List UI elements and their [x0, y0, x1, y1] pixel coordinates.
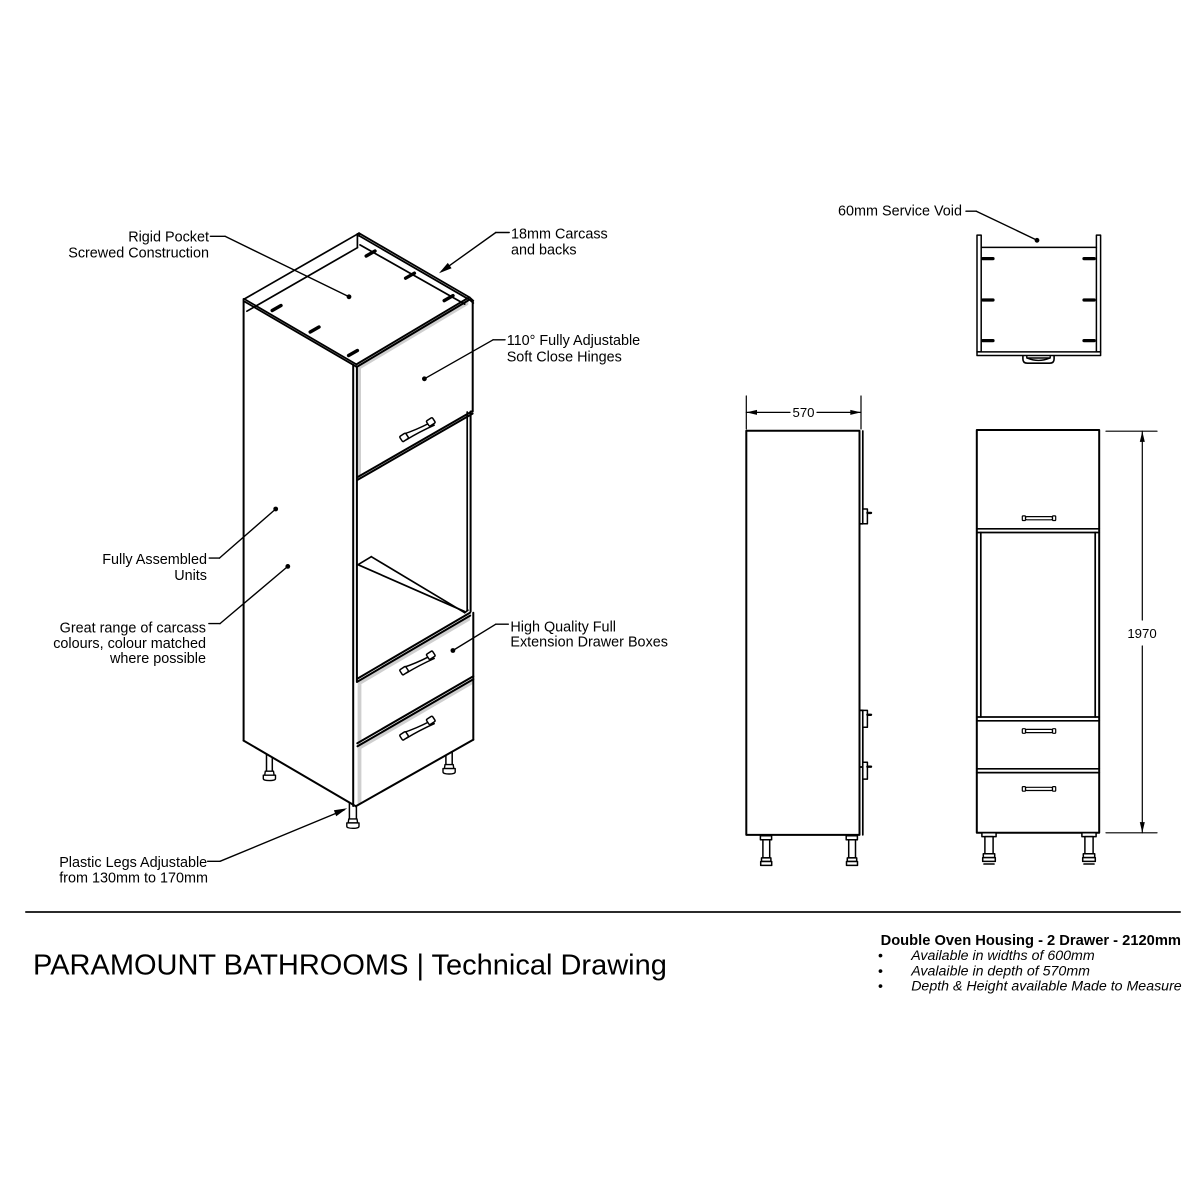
svg-text:Fully Assembled: Fully Assembled	[102, 552, 207, 568]
svg-text:18mm Carcass: 18mm Carcass	[511, 226, 608, 242]
svg-text:colours, colour matched: colours, colour matched	[53, 636, 206, 652]
svg-text:High Quality Full: High Quality Full	[510, 619, 616, 635]
svg-text:1970: 1970	[1127, 626, 1156, 641]
svg-text:from 130mm to 170mm: from 130mm to 170mm	[59, 870, 208, 886]
svg-text:60mm Service Void: 60mm Service Void	[838, 204, 962, 220]
svg-text:•: •	[878, 963, 883, 979]
svg-text:•: •	[878, 948, 883, 964]
svg-text:Units: Units	[174, 568, 207, 584]
svg-text:Screwed Construction: Screwed Construction	[68, 246, 209, 262]
svg-text:Extension Drawer Boxes: Extension Drawer Boxes	[510, 634, 668, 650]
svg-text:570: 570	[792, 405, 814, 420]
svg-text:and backs: and backs	[511, 243, 577, 259]
svg-text:Rigid Pocket: Rigid Pocket	[128, 229, 209, 245]
svg-text:Avalaible in depth of 570mm: Avalaible in depth of 570mm	[910, 963, 1090, 979]
svg-text:110° Fully Adjustable: 110° Fully Adjustable	[507, 333, 641, 349]
svg-text:Plastic Legs Adjustable: Plastic Legs Adjustable	[59, 855, 207, 871]
svg-text:•: •	[878, 979, 883, 995]
svg-text:where possible: where possible	[109, 651, 206, 667]
svg-text:Great range of carcass: Great range of carcass	[60, 621, 206, 637]
svg-text:Double Oven Housing - 2 Drawer: Double Oven Housing - 2 Drawer - 2120mm	[881, 933, 1181, 949]
svg-text:Soft Close Hinges: Soft Close Hinges	[507, 350, 622, 366]
svg-text:Available in widths of 600mm: Available in widths of 600mm	[910, 948, 1095, 964]
svg-text:PARAMOUNT BATHROOMS | Technica: PARAMOUNT BATHROOMS | Technical Drawing	[33, 950, 667, 982]
svg-text:Depth & Height available Made: Depth & Height available Made to Measure	[911, 979, 1182, 995]
